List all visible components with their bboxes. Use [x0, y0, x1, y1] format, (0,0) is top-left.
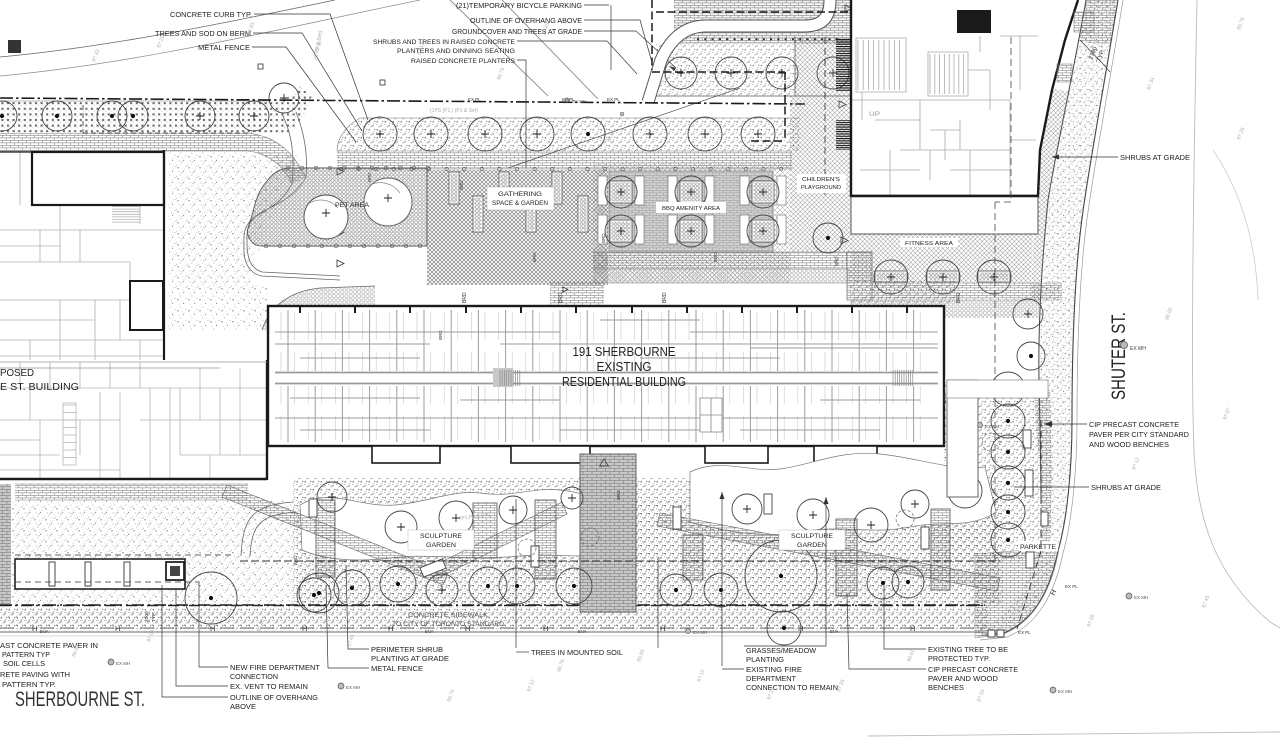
svg-text:2300: 2300 — [144, 611, 150, 622]
svg-text:NEW FIRE DEPARTMENT: NEW FIRE DEPARTMENT — [230, 665, 321, 672]
svg-text:BRD: BRD — [459, 180, 464, 190]
svg-text:H: H — [115, 624, 120, 633]
svg-text:TREES AND SOD ON BERM: TREES AND SOD ON BERM — [155, 31, 251, 38]
svg-text:PLANTING: PLANTING — [746, 657, 784, 664]
svg-text:(21)TEMPORARY BICYCLE PARKING: (21)TEMPORARY BICYCLE PARKING — [456, 3, 582, 10]
svg-text:PLANTING AT GRADE: PLANTING AT GRADE — [371, 656, 449, 663]
svg-text:METAL FENCE: METAL FENCE — [198, 45, 250, 52]
svg-text:BRD: BRD — [942, 394, 947, 404]
svg-text:SCULPTURE: SCULPTURE — [791, 534, 833, 540]
svg-text:191 SHERBOURNE: 191 SHERBOURNE — [573, 344, 676, 359]
svg-text:METAL FENCE: METAL FENCE — [371, 666, 423, 673]
svg-text:EX MH: EX MH — [346, 685, 360, 690]
svg-text:H: H — [910, 624, 915, 633]
svg-text:BRD: BRD — [462, 292, 468, 303]
svg-text:BBQ AMENITY AREA: BBQ AMENITY AREA — [662, 206, 720, 212]
svg-text:TO CITY OF TORONTO STANDARD: TO CITY OF TORONTO STANDARD — [392, 622, 505, 628]
svg-text:CONNECTION: CONNECTION — [230, 674, 278, 681]
svg-text:AND WOOD BENCHES: AND WOOD BENCHES — [1089, 442, 1169, 449]
svg-text:SOIL CELLS: SOIL CELLS — [3, 661, 45, 668]
svg-text:H: H — [210, 624, 215, 633]
svg-text:EXISTING FIRE: EXISTING FIRE — [746, 667, 802, 674]
svg-text:BRD: BRD — [558, 292, 564, 303]
svg-text:BRD: BRD — [293, 555, 298, 565]
svg-text:GARDEN: GARDEN — [797, 543, 827, 549]
svg-text:RETE PAVING WITH: RETE PAVING WITH — [0, 672, 70, 679]
svg-text:EX PL: EX PL — [468, 97, 481, 102]
svg-text:PROTECTED TYP.: PROTECTED TYP. — [928, 656, 990, 663]
svg-text:BRD: BRD — [367, 172, 372, 182]
svg-text:BRD: BRD — [834, 256, 839, 266]
svg-text:EX MH: EX MH — [693, 630, 707, 635]
svg-text:SHRUBS AT GRADE: SHRUBS AT GRADE — [1120, 155, 1190, 162]
svg-text:EVA: EVA — [830, 629, 839, 634]
svg-text:CIP PRECAST CONCRETE: CIP PRECAST CONCRETE — [1089, 422, 1179, 429]
svg-text:EX MH: EX MH — [1134, 595, 1148, 600]
svg-text:PET AREA: PET AREA — [335, 203, 369, 209]
svg-text:OUTLINE OF OVERHANG: OUTLINE OF OVERHANG — [230, 695, 318, 702]
svg-text:EVA: EVA — [425, 629, 434, 634]
svg-text:EX MH: EX MH — [985, 424, 999, 429]
svg-text:BRD: BRD — [532, 252, 537, 262]
svg-text:AST CONCRETE PAVER IN: AST CONCRETE PAVER IN — [0, 643, 98, 650]
svg-text:CIP PRECAST CONCRETE: CIP PRECAST CONCRETE — [928, 667, 1018, 674]
svg-text:EX PL: EX PL — [607, 97, 620, 102]
svg-text:EX MH: EX MH — [1058, 689, 1072, 694]
svg-text:EXISTING TREE TO BE: EXISTING TREE TO BE — [928, 647, 1008, 654]
svg-text:UP: UP — [869, 111, 880, 118]
svg-text:SCULPTURE: SCULPTURE — [420, 534, 462, 540]
svg-text:BRD: BRD — [662, 292, 668, 303]
svg-text:H: H — [302, 624, 307, 633]
svg-text:BRD: BRD — [601, 233, 606, 243]
svg-text:PAVER AND WOOD: PAVER AND WOOD — [928, 676, 998, 683]
svg-text:PARKETTE: PARKETTE — [1020, 545, 1056, 551]
svg-text:EX PL: EX PL — [1018, 630, 1031, 635]
svg-text:RESIDENTIAL BUILDING: RESIDENTIAL BUILDING — [562, 374, 686, 389]
svg-text:EX PL: EX PL — [1065, 584, 1078, 589]
svg-text:OUTLINE OF OVERHANG ABOVE: OUTLINE OF OVERHANG ABOVE — [470, 18, 582, 25]
svg-text:BENCHES: BENCHES — [928, 685, 964, 692]
svg-text:PLANTERS AND DINNING SEATING: PLANTERS AND DINNING SEATING — [397, 48, 515, 55]
svg-text:EVA: EVA — [578, 629, 587, 634]
svg-text:ABOVE: ABOVE — [230, 704, 256, 711]
svg-text:CONNECTION TO REMAIN: CONNECTION TO REMAIN — [746, 685, 838, 692]
svg-text:SHERBOURNE ST.: SHERBOURNE ST. — [15, 688, 145, 711]
svg-text:SHRUBS AT GRADE: SHRUBS AT GRADE — [1091, 485, 1161, 492]
svg-text:GATHERING: GATHERING — [498, 192, 542, 198]
svg-text:PERIMETER SHRUB: PERIMETER SHRUB — [371, 647, 443, 654]
svg-text:EX MH: EX MH — [116, 661, 130, 666]
svg-text:PAVER PER CITY STANDARD: PAVER PER CITY STANDARD — [1089, 432, 1189, 439]
svg-text:SPACE & GARDEN: SPACE & GARDEN — [492, 201, 548, 207]
svg-text:FITNESS AREA: FITNESS AREA — [905, 241, 953, 247]
svg-text:POSED: POSED — [0, 368, 34, 379]
svg-text:SHRUBS AND TREES IN RAISED CON: SHRUBS AND TREES IN RAISED CONCRETE — [373, 39, 516, 46]
svg-text:EX. VENT TO REMAIN: EX. VENT TO REMAIN — [230, 684, 308, 691]
svg-text:CONCRETE CURB TYP.: CONCRETE CURB TYP. — [170, 12, 252, 19]
svg-text:H: H — [660, 624, 665, 633]
svg-text:H: H — [543, 624, 548, 633]
svg-text:GRASSES/MEADOW: GRASSES/MEADOW — [746, 648, 816, 655]
svg-text:DEPARTMENT: DEPARTMENT — [746, 676, 797, 683]
svg-text:SHUTER ST.: SHUTER ST. — [1109, 312, 1130, 400]
svg-text:(1PS (P1,) (P1 & Set): (1PS (P1,) (P1 & Set) — [430, 108, 478, 114]
svg-text:TYP: TYP — [151, 613, 157, 622]
svg-text:PATTERN TYP: PATTERN TYP — [2, 652, 50, 659]
svg-text:BRD: BRD — [713, 252, 718, 262]
svg-text:CHILDREN'S: CHILDREN'S — [802, 177, 840, 183]
svg-text:GARDEN: GARDEN — [426, 543, 456, 549]
svg-text:GROUNDCOVER AND TREES AT GRADE: GROUNDCOVER AND TREES AT GRADE — [452, 29, 582, 36]
svg-text:EVA: EVA — [40, 629, 49, 634]
svg-text:BRD: BRD — [616, 490, 621, 500]
svg-text:TREES IN MOUNTED SOIL: TREES IN MOUNTED SOIL — [531, 650, 623, 657]
svg-text:BRD: BRD — [438, 330, 443, 340]
svg-text:EX MH: EX MH — [572, 99, 586, 104]
svg-text:PLAYGROUND: PLAYGROUND — [801, 185, 841, 191]
svg-text:RAISED CONCRETE PLANTERS: RAISED CONCRETE PLANTERS — [411, 58, 516, 65]
svg-text:EX MH: EX MH — [1130, 346, 1146, 352]
svg-text:H: H — [32, 624, 37, 633]
svg-text:BRD: BRD — [956, 292, 962, 303]
svg-text:E ST. BUILDING: E ST. BUILDING — [0, 382, 79, 393]
svg-text:CONCRETE SIDEWALK: CONCRETE SIDEWALK — [408, 613, 488, 619]
svg-text:EXISTING: EXISTING — [597, 359, 652, 374]
